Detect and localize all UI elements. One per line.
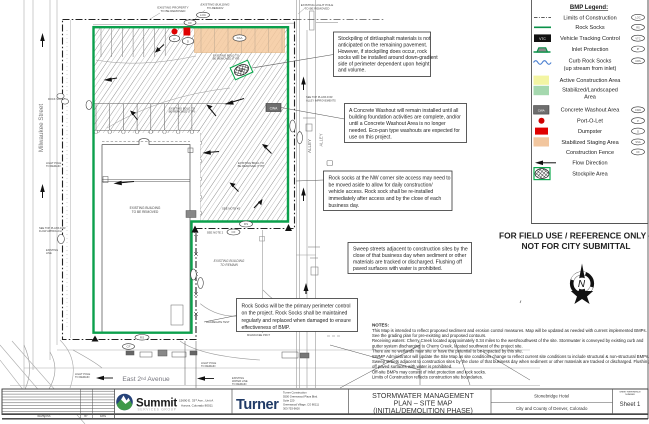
svg-text:Construction Fence: Construction Fence bbox=[566, 150, 614, 156]
svg-text:Stockpiling of dirt/asphalt ma: Stockpiling of dirt/asphalt materials is… bbox=[338, 36, 431, 42]
svg-text:CF: CF bbox=[127, 345, 131, 349]
svg-text:Active Construction Area: Active Construction Area bbox=[560, 78, 622, 84]
svg-text:East 2nd Avenue: East 2nd Avenue bbox=[122, 376, 170, 383]
svg-text:SEE NOTE #2: SEE NOTE #2 bbox=[222, 207, 240, 211]
svg-text:Stabilized/Landscaped: Stabilized/Landscaped bbox=[562, 88, 618, 94]
svg-text:business day.: business day. bbox=[329, 203, 360, 209]
svg-text:SEE NOTE 2: SEE NOTE 2 bbox=[207, 231, 224, 235]
svg-text:on the project. Rock Socks s: on the project. Rock Socks shall be main… bbox=[242, 311, 348, 317]
svg-text:PLAN – SITE MAP: PLAN – SITE MAP bbox=[394, 401, 453, 408]
svg-text:Stockpile Area: Stockpile Area bbox=[572, 172, 608, 178]
svg-text:effectiveness of BMP.: effectiveness of BMP. bbox=[242, 325, 291, 331]
svg-text:ALLEY IMPROVEMENTS: ALLEY IMPROVEMENTS bbox=[306, 98, 336, 102]
svg-text:CF: CF bbox=[188, 21, 192, 25]
svg-text:RS: RS bbox=[140, 336, 144, 340]
svg-text:IP: IP bbox=[637, 47, 640, 51]
svg-text:Curb Rock Socks: Curb Rock Socks bbox=[569, 59, 612, 65]
svg-text:materials are tracked or disch: materials are tracked or discharged. Flu… bbox=[353, 260, 462, 266]
svg-text:TO REMAIN: TO REMAIN bbox=[207, 6, 224, 10]
svg-text:LOC: LOC bbox=[635, 16, 640, 20]
svg-text:BE REMOVED (TYP): BE REMOVED (TYP) bbox=[213, 57, 240, 61]
svg-text:TO REMAIN: TO REMAIN bbox=[232, 382, 246, 386]
svg-text:close of that business day whe: close of that business day when sediment… bbox=[353, 253, 467, 259]
svg-text:TO REMAIN: TO REMAIN bbox=[75, 375, 89, 379]
svg-text:Rock Socks: Rock Socks bbox=[575, 25, 605, 31]
svg-text:needed. Eco-pan type washouts: needed. Eco-pan type washouts are expect… bbox=[349, 128, 460, 134]
svg-text:5500 Greenwood Plaza Blvd.: 5500 Greenwood Plaza Blvd. bbox=[283, 395, 318, 399]
svg-text:STORMWATER MANAGEMENT: STORMWATER MANAGEMENT bbox=[372, 393, 474, 400]
svg-text:BY: BY bbox=[84, 415, 88, 418]
svg-text:MILWAUKEE PRCT: MILWAUKEE PRCT bbox=[247, 333, 270, 337]
svg-text:A Concrete Washout will remain: A Concrete Washout will remain installed… bbox=[349, 108, 458, 114]
svg-text:immediately after access and b: immediately after access and by the clos… bbox=[329, 196, 442, 202]
svg-text:TO BE REMOVED: TO BE REMOVED bbox=[161, 9, 187, 13]
svg-text:Rock socks at the NW corner s: Rock socks at the NW corner site access … bbox=[329, 176, 451, 182]
svg-text:SEE TOP PLANS FOR: SEE TOP PLANS FOR bbox=[306, 95, 333, 99]
svg-text:CWA: CWA bbox=[635, 108, 641, 112]
svg-text:Limits of Construction: Limits of Construction bbox=[563, 15, 616, 21]
svg-text:City and County of Denver, Col: City and County of Denver, Colorado bbox=[516, 406, 588, 411]
svg-text:NOT FOR CITY SUBMITTAL: NOT FOR CITY SUBMITTAL bbox=[521, 241, 630, 251]
svg-text:CRS: CRS bbox=[635, 59, 641, 63]
svg-text:side of perimeter dependent up: side of perimeter dependent upon height bbox=[338, 61, 430, 67]
svg-text:LOC: LOC bbox=[200, 13, 207, 17]
svg-text:until a Concrete Washout Area: until a Concrete Washout Area is no long… bbox=[349, 121, 446, 127]
svg-text:Area: Area bbox=[584, 95, 597, 101]
svg-text:RS: RS bbox=[244, 222, 248, 226]
svg-text:Turner Construction: Turner Construction bbox=[283, 391, 307, 395]
svg-text:be moved aside to allow for da: be moved aside to allow for daily constr… bbox=[329, 182, 434, 188]
svg-text:DATE: DATE bbox=[100, 415, 107, 418]
svg-text:Flow Direction: Flow Direction bbox=[572, 161, 607, 167]
svg-text:paved surfaces with water is p: paved surfaces with water is prohibited. bbox=[353, 266, 442, 272]
svg-text:BMP Legend:: BMP Legend: bbox=[570, 5, 608, 11]
svg-text:TO REMAIN: TO REMAIN bbox=[201, 364, 215, 368]
svg-text:Turner: Turner bbox=[236, 397, 279, 413]
svg-text:P: P bbox=[173, 37, 175, 41]
svg-text:P: P bbox=[637, 119, 639, 123]
svg-text:CF: CF bbox=[232, 230, 236, 234]
svg-text:BE REMOVED (TYP): BE REMOVED (TYP) bbox=[169, 110, 196, 114]
svg-text:SERVICES GROUP: SERVICES GROUP bbox=[138, 408, 177, 412]
svg-text:socks will be installed around: socks will be installed around down-grad… bbox=[338, 55, 438, 61]
svg-text:FLOW APPROACH: FLOW APPROACH bbox=[39, 229, 62, 233]
svg-text:(INITIAL/DEMOLITION PHASE): (INITIAL/DEMOLITION PHASE) bbox=[373, 408, 473, 415]
svg-text:TO BE REMOVED: TO BE REMOVED bbox=[132, 210, 159, 214]
svg-text:SSA: SSA bbox=[635, 140, 640, 144]
svg-text:NOTES:: NOTES: bbox=[372, 323, 390, 328]
svg-text:CF: CF bbox=[636, 150, 640, 154]
svg-text:N: N bbox=[578, 279, 586, 290]
svg-text:vehicle access. Rock sock sha: vehicle access. Rock sock shall be re-in… bbox=[329, 189, 434, 195]
svg-text:Milwaukee Street: Milwaukee Street bbox=[38, 104, 45, 153]
svg-text:Concrete Washout Area: Concrete Washout Area bbox=[561, 108, 621, 114]
svg-text:VTC: VTC bbox=[635, 36, 640, 40]
svg-text:Vehicle Tracking Control: Vehicle Tracking Control bbox=[560, 36, 620, 42]
svg-text:Stonebridge Hotel: Stonebridge Hotel bbox=[534, 394, 569, 399]
svg-text:Port-O-Let: Port-O-Let bbox=[577, 119, 603, 125]
svg-text:TO REMAIN: TO REMAIN bbox=[46, 164, 60, 168]
svg-text:However, if stockpiling does o: However, if stockpiling does occur, rock bbox=[338, 49, 427, 55]
svg-text:Suite 220: Suite 220 bbox=[283, 399, 295, 403]
svg-text:Rock Socks will be the primary: Rock Socks will be the primary perimeter… bbox=[242, 303, 351, 309]
svg-text:anticipated on the remaining p: anticipated on the remaining pavement. bbox=[338, 43, 427, 49]
svg-text:regularly and replaced when da: regularly and replaced when damaged to e… bbox=[242, 318, 351, 324]
svg-text:use on this project.: use on this project. bbox=[349, 134, 392, 140]
svg-text:RS: RS bbox=[636, 26, 640, 30]
svg-text:Greenwood Village, CO 80111: Greenwood Village, CO 80111 bbox=[283, 403, 320, 407]
svg-text:Inlet Protection: Inlet Protection bbox=[571, 47, 608, 53]
svg-text:TO REMAIN: TO REMAIN bbox=[220, 263, 238, 267]
svg-text:D: D bbox=[637, 129, 639, 133]
svg-text:VTC: VTC bbox=[539, 37, 546, 41]
svg-text:Dumpster: Dumpster bbox=[578, 129, 602, 135]
svg-text:CWA: CWA bbox=[538, 108, 545, 112]
svg-text:SSA: SSA bbox=[236, 36, 242, 40]
svg-text:Sheet 1: Sheet 1 bbox=[620, 402, 641, 408]
svg-text:303-753-9600: 303-753-9600 bbox=[283, 407, 300, 411]
svg-text:ALLEY: ALLEY bbox=[307, 139, 312, 153]
svg-text:Sweep streets adjacent to cons: Sweep streets adjacent to construction s… bbox=[353, 247, 468, 253]
svg-text:TO BE REMOVED: TO BE REMOVED bbox=[305, 6, 331, 10]
svg-text:REVISIONS: REVISIONS bbox=[37, 415, 50, 418]
svg-text:LINE: LINE bbox=[46, 251, 52, 255]
svg-text:15690 E. 33rd Ave., Unit A: 15690 E. 33rd Ave., Unit A bbox=[179, 399, 213, 403]
svg-text:FOR FIELD USE / REFERENCE ONLY: FOR FIELD USE / REFERENCE ONLY – bbox=[499, 231, 649, 241]
svg-text:NUMBER: NUMBER bbox=[625, 394, 635, 396]
svg-text:and volume.: and volume. bbox=[338, 68, 366, 74]
svg-text:Stabilized Staging Area: Stabilized Staging Area bbox=[561, 140, 619, 146]
svg-text:Aurora, Colorado 80011: Aurora, Colorado 80011 bbox=[181, 404, 213, 408]
svg-text:Limits of Construction reflect: Limits of Construction reflects construc… bbox=[372, 375, 483, 380]
svg-text:(up stream from inlet): (up stream from inlet) bbox=[564, 66, 617, 72]
svg-text:CWA: CWA bbox=[270, 106, 279, 110]
svg-text:ALLEY: ALLEY bbox=[319, 133, 324, 146]
svg-text:building foundation activities: building foundation activities are compl… bbox=[349, 115, 461, 121]
svg-text:BE REMOVED (TYP): BE REMOVED (TYP) bbox=[238, 164, 265, 168]
